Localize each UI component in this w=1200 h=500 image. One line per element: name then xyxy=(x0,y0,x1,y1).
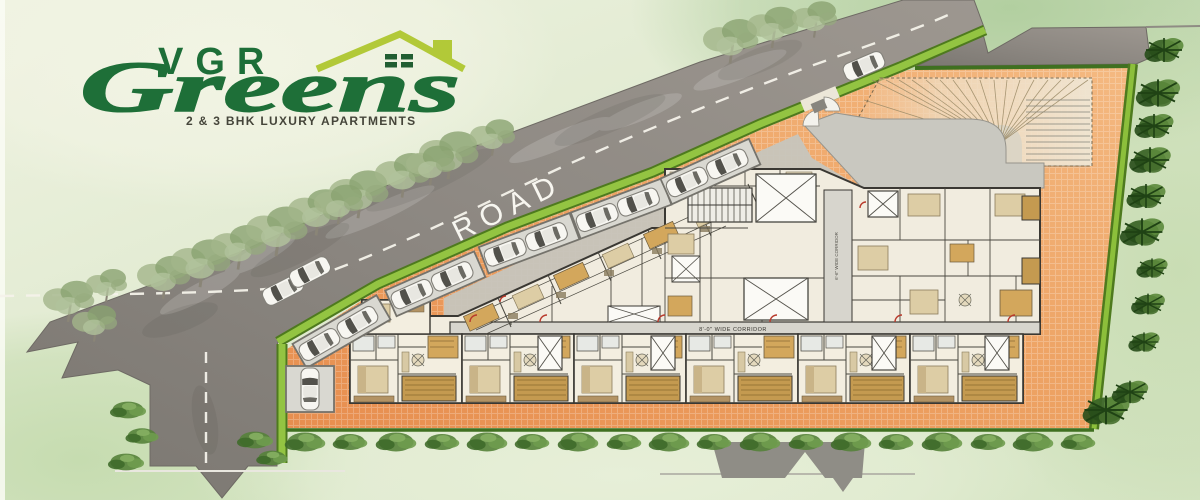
svg-text:6'-6" WIDE CORRIDOR: 6'-6" WIDE CORRIDOR xyxy=(834,231,839,279)
svg-text:8'-0" WIDE CORRIDOR: 8'-0" WIDE CORRIDOR xyxy=(699,327,767,333)
svg-text:2 & 3 BHK LUXURY APARTMENTS: 2 & 3 BHK LUXURY APARTMENTS xyxy=(186,114,416,128)
